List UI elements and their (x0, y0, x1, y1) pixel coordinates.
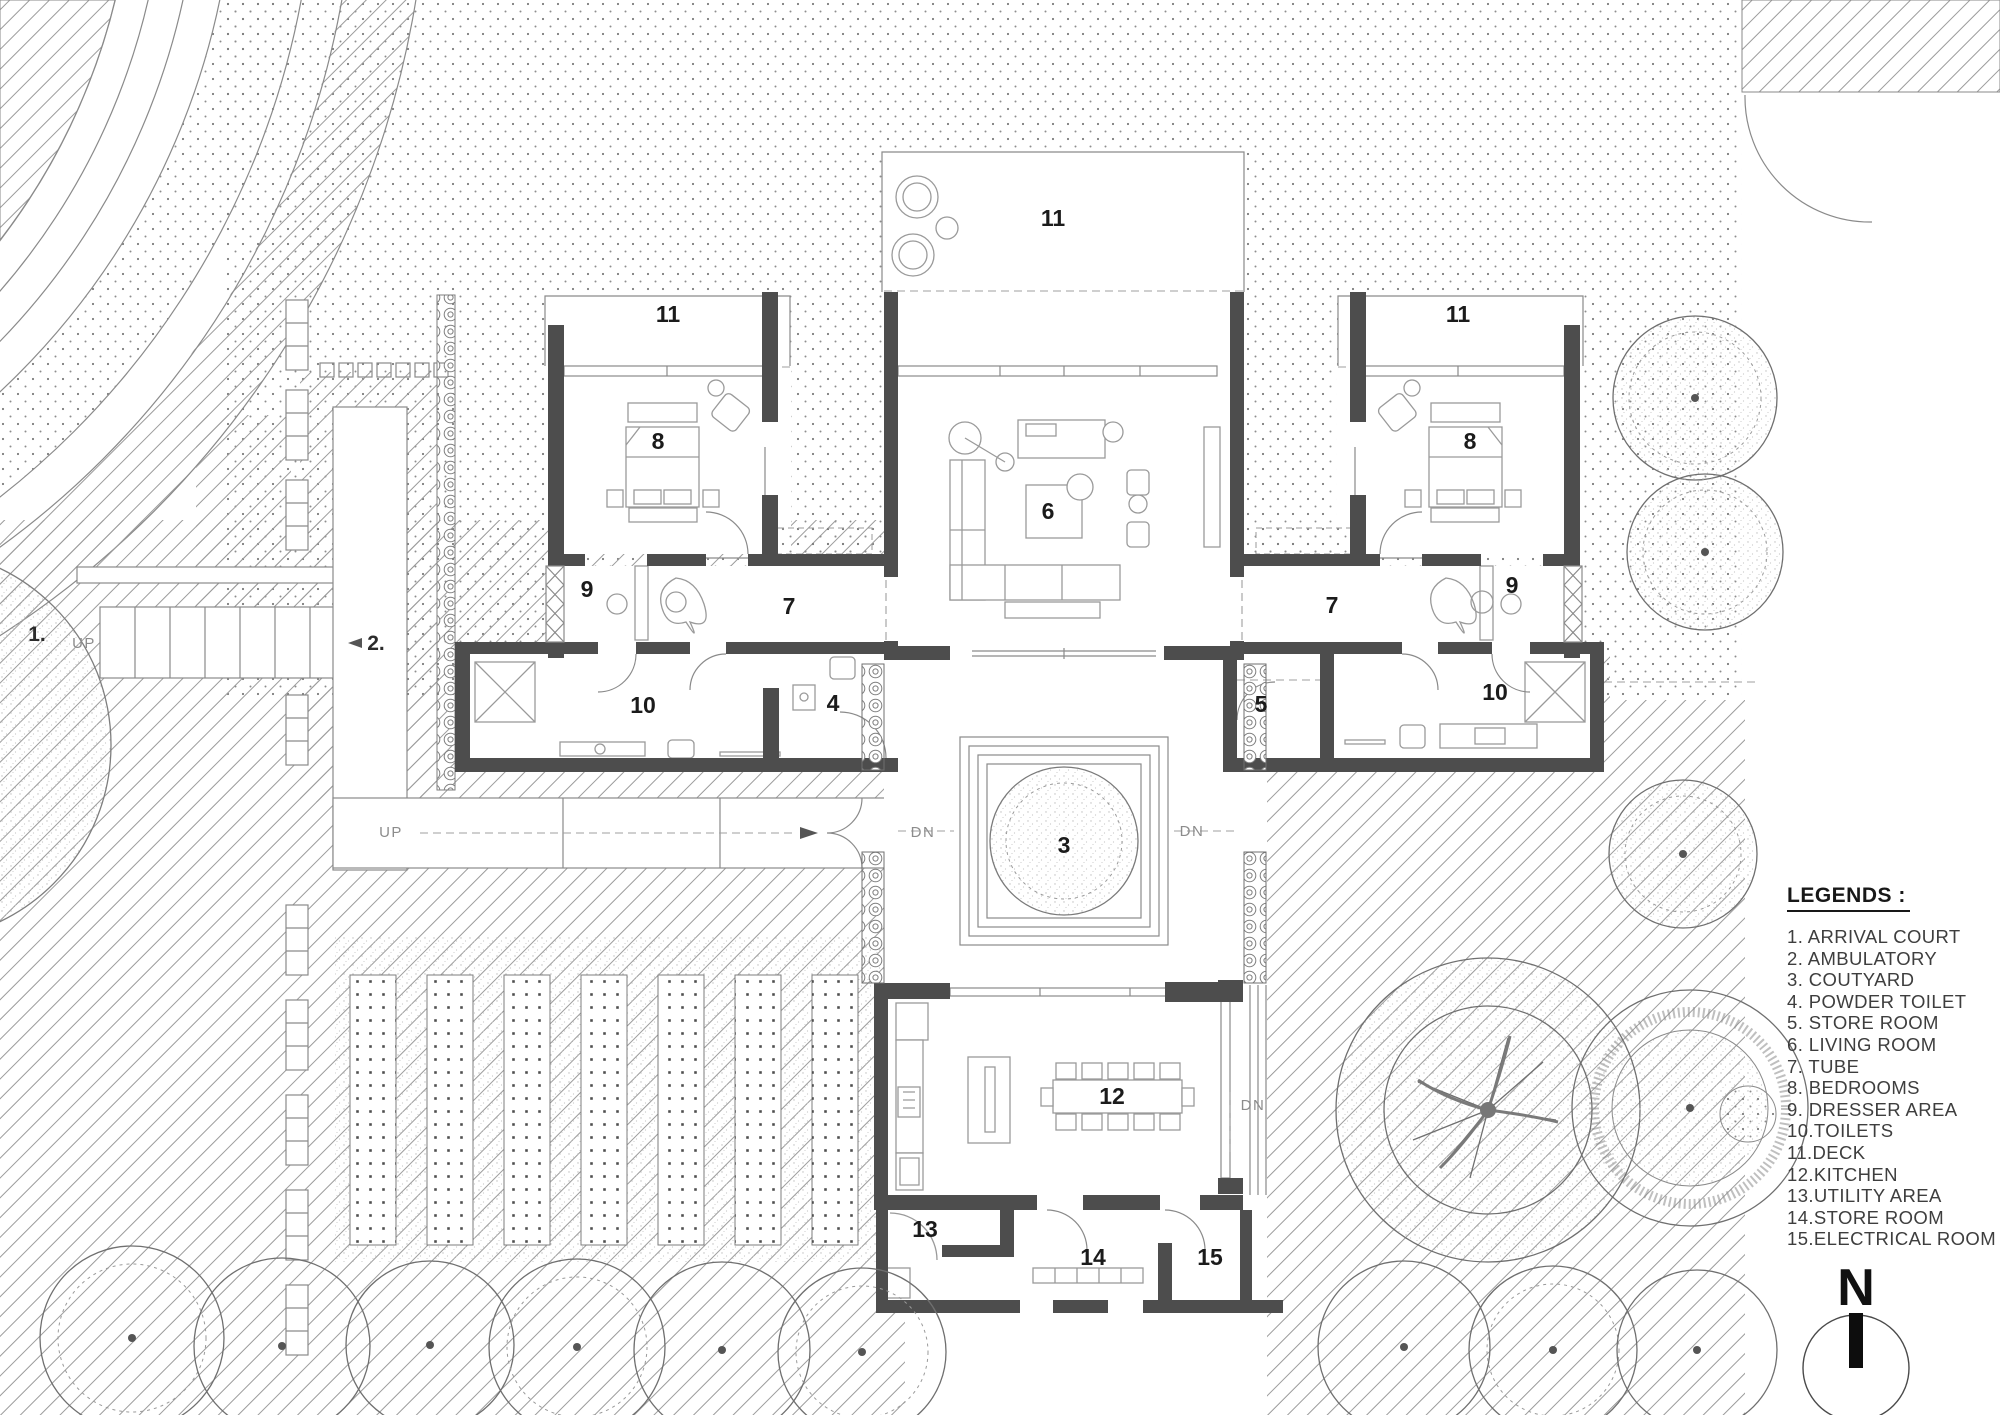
room-label: 11 (1041, 205, 1066, 231)
legend-item: 11.DECK (1787, 1142, 1996, 1164)
room-label: 7 (783, 593, 796, 619)
legend-item: 15.ELECTRICAL ROOM (1787, 1228, 1996, 1250)
legend-item: 3. COUTYARD (1787, 969, 1996, 991)
up-label: UP (379, 824, 403, 841)
legend-item: 8. BEDROOMS (1787, 1077, 1996, 1099)
legend-item: 2. AMBULATORY (1787, 948, 1996, 970)
room-label: 15 (1197, 1244, 1223, 1270)
floor-plan-sheet: 11 11 11 8 8 6 9 9 7 7 10 4 5 10 3 12 13… (0, 0, 2000, 1415)
dn-label: DN (1180, 823, 1205, 840)
room-label: 12 (1099, 1083, 1125, 1109)
room-label: 10 (630, 692, 656, 718)
room-label: 7 (1326, 592, 1339, 618)
floor-plan-drawing: 11 11 11 8 8 6 9 9 7 7 10 4 5 10 3 12 13… (0, 0, 2000, 1415)
area-label: 2. (367, 632, 385, 655)
legend-heading: LEGENDS : (1787, 884, 1910, 912)
legend-item: 10.TOILETS (1787, 1120, 1996, 1142)
large-tree (1336, 958, 1640, 1262)
jali-screen-wall (437, 295, 455, 790)
legend: LEGENDS : 1. ARRIVAL COURT 2. AMBULATORY… (1787, 884, 1996, 1250)
planting-beds (335, 935, 900, 1262)
room-label: 11 (1446, 301, 1471, 327)
dn-label: DN (911, 824, 936, 841)
room-label: 14 (1080, 1244, 1106, 1270)
legend-item: 1. ARRIVAL COURT (1787, 926, 1996, 948)
legend-item: 4. POWDER TOILET (1787, 991, 1996, 1013)
legend-item: 5. STORE ROOM (1787, 1012, 1996, 1034)
up-label: UP (72, 635, 96, 652)
room-label: 11 (656, 301, 681, 327)
room-label: 10 (1482, 679, 1508, 705)
room-label: 8 (652, 428, 665, 454)
room-label: 9 (581, 576, 594, 602)
entry-stairs (100, 607, 348, 678)
room-label: 9 (1506, 572, 1519, 598)
room-label: 4 (827, 690, 840, 716)
legend-item: 6. LIVING ROOM (1787, 1034, 1996, 1056)
room-label: 6 (1042, 498, 1055, 524)
room-label: 5 (1255, 691, 1268, 717)
dn-label: DN (1241, 1097, 1266, 1114)
compass-needle (1849, 1313, 1863, 1368)
north-label: N (1837, 1259, 1875, 1317)
legend-item: 13.UTILITY AREA (1787, 1185, 1996, 1207)
legend-item: 9. DRESSER AREA (1787, 1099, 1996, 1121)
legend-item: 12.KITCHEN (1787, 1164, 1996, 1186)
legend-item: 7. TUBE (1787, 1056, 1996, 1078)
room-label: 3 (1058, 832, 1071, 858)
legend-item: 14.STORE ROOM (1787, 1207, 1996, 1229)
room-label: 13 (912, 1216, 938, 1242)
room-label: 8 (1464, 428, 1477, 454)
area-label: 1. (28, 623, 46, 646)
